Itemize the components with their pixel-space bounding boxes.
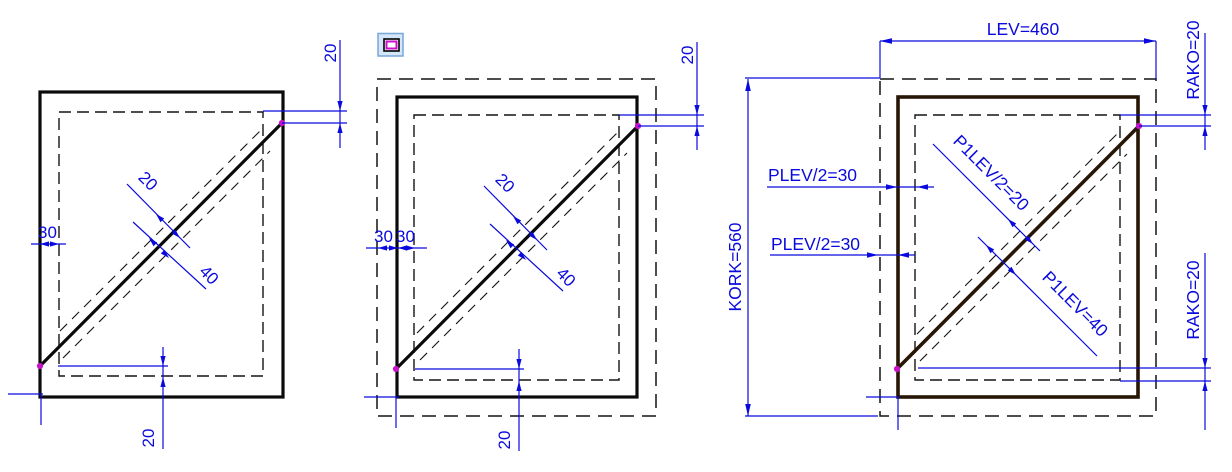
diagonal-brace (396, 126, 638, 369)
dimension-label: RAKO=20 (1183, 260, 1203, 340)
panel-right: LEV=460 RAKO=20 PLEV/2=30 PLEV/2=30 (725, 19, 1211, 430)
arrowhead (160, 377, 165, 387)
dimension-label: 20 (495, 431, 514, 450)
dimension-left: 30 (31, 223, 66, 247)
dimension-diagonal: 20 40 (484, 170, 579, 291)
arrowhead (1202, 358, 1207, 368)
panel-middle: 20 30 30 20 40 20 (364, 34, 704, 452)
arrowhead (504, 238, 514, 248)
dimension-label: 40 (195, 262, 222, 289)
diagonal-endpoint-marker (393, 366, 399, 372)
dimension-label: P1LEV=40 (1038, 267, 1112, 341)
arrowhead (337, 101, 342, 111)
arrowhead (516, 359, 521, 369)
arrowhead (406, 245, 415, 250)
dimension-label: LEV=460 (987, 19, 1060, 39)
dimension-label: RAKO=20 (1183, 20, 1203, 100)
dimension-top-right: 20 (263, 40, 347, 148)
arrowhead (1202, 381, 1207, 391)
dimension-label: 40 (552, 264, 579, 291)
diagonal-dashed-upper (60, 127, 264, 331)
arrowhead (694, 126, 699, 136)
arrowhead (516, 381, 521, 391)
dimension-label: 20 (678, 46, 697, 65)
dimension-width: LEV=460 (880, 19, 1156, 79)
dimension-line (133, 222, 206, 289)
block-preview-icon[interactable] (378, 34, 403, 57)
arrowhead (1202, 105, 1207, 115)
dimension-line (490, 224, 563, 291)
arrowhead (378, 245, 387, 250)
arrowhead (917, 184, 928, 190)
arrowhead (867, 252, 878, 258)
panel-left: 20 30 20 40 20 (8, 40, 347, 449)
diagonal-endpoint-marker (894, 366, 900, 372)
arrowhead (160, 356, 165, 366)
dimension-label: KORK=560 (725, 222, 745, 311)
dimension-bottom: 20 (415, 349, 524, 451)
technical-drawing: 20 30 20 40 20 (0, 0, 1232, 472)
dimension-label: 30 (38, 223, 57, 242)
dimension-diagonal-half: P1LEV/2=20 (933, 131, 1040, 251)
dimension-label: 20 (139, 429, 158, 448)
dimension-label: 20 (321, 44, 340, 63)
diagonal-endpoint-marker (37, 363, 43, 369)
dimension-label: 30 (374, 227, 393, 246)
diagonal-dashed-upper (417, 129, 621, 333)
dimension-label: PLEV/2=30 (771, 234, 860, 254)
dimension-diagonal: 20 40 (127, 168, 222, 289)
arrowhead (886, 184, 897, 190)
arrowhead (745, 404, 751, 416)
arrowhead (694, 105, 699, 115)
arrowhead (147, 236, 157, 246)
dimension-label: 30 (396, 227, 415, 246)
dimension-frame-left-lower: PLEV/2=30 (770, 234, 915, 258)
dimension-label: 20 (491, 170, 518, 197)
cad-drawing-canvas: 20 30 20 40 20 (0, 0, 1232, 472)
arrowhead (1202, 126, 1207, 136)
dimension-label: PLEV/2=30 (768, 165, 857, 185)
dimension-label: 20 (134, 168, 161, 195)
arrowhead (398, 245, 407, 250)
dimension-frame-left-upper: PLEV/2=30 (767, 165, 934, 190)
arrowhead (880, 38, 892, 44)
dimension-diagonal-full: P1LEV=40 (978, 237, 1112, 356)
arrowhead (745, 79, 751, 91)
diagonal-brace (40, 123, 282, 366)
arrowhead (337, 123, 342, 133)
arrowhead (50, 241, 59, 246)
arrowhead (1144, 38, 1156, 44)
